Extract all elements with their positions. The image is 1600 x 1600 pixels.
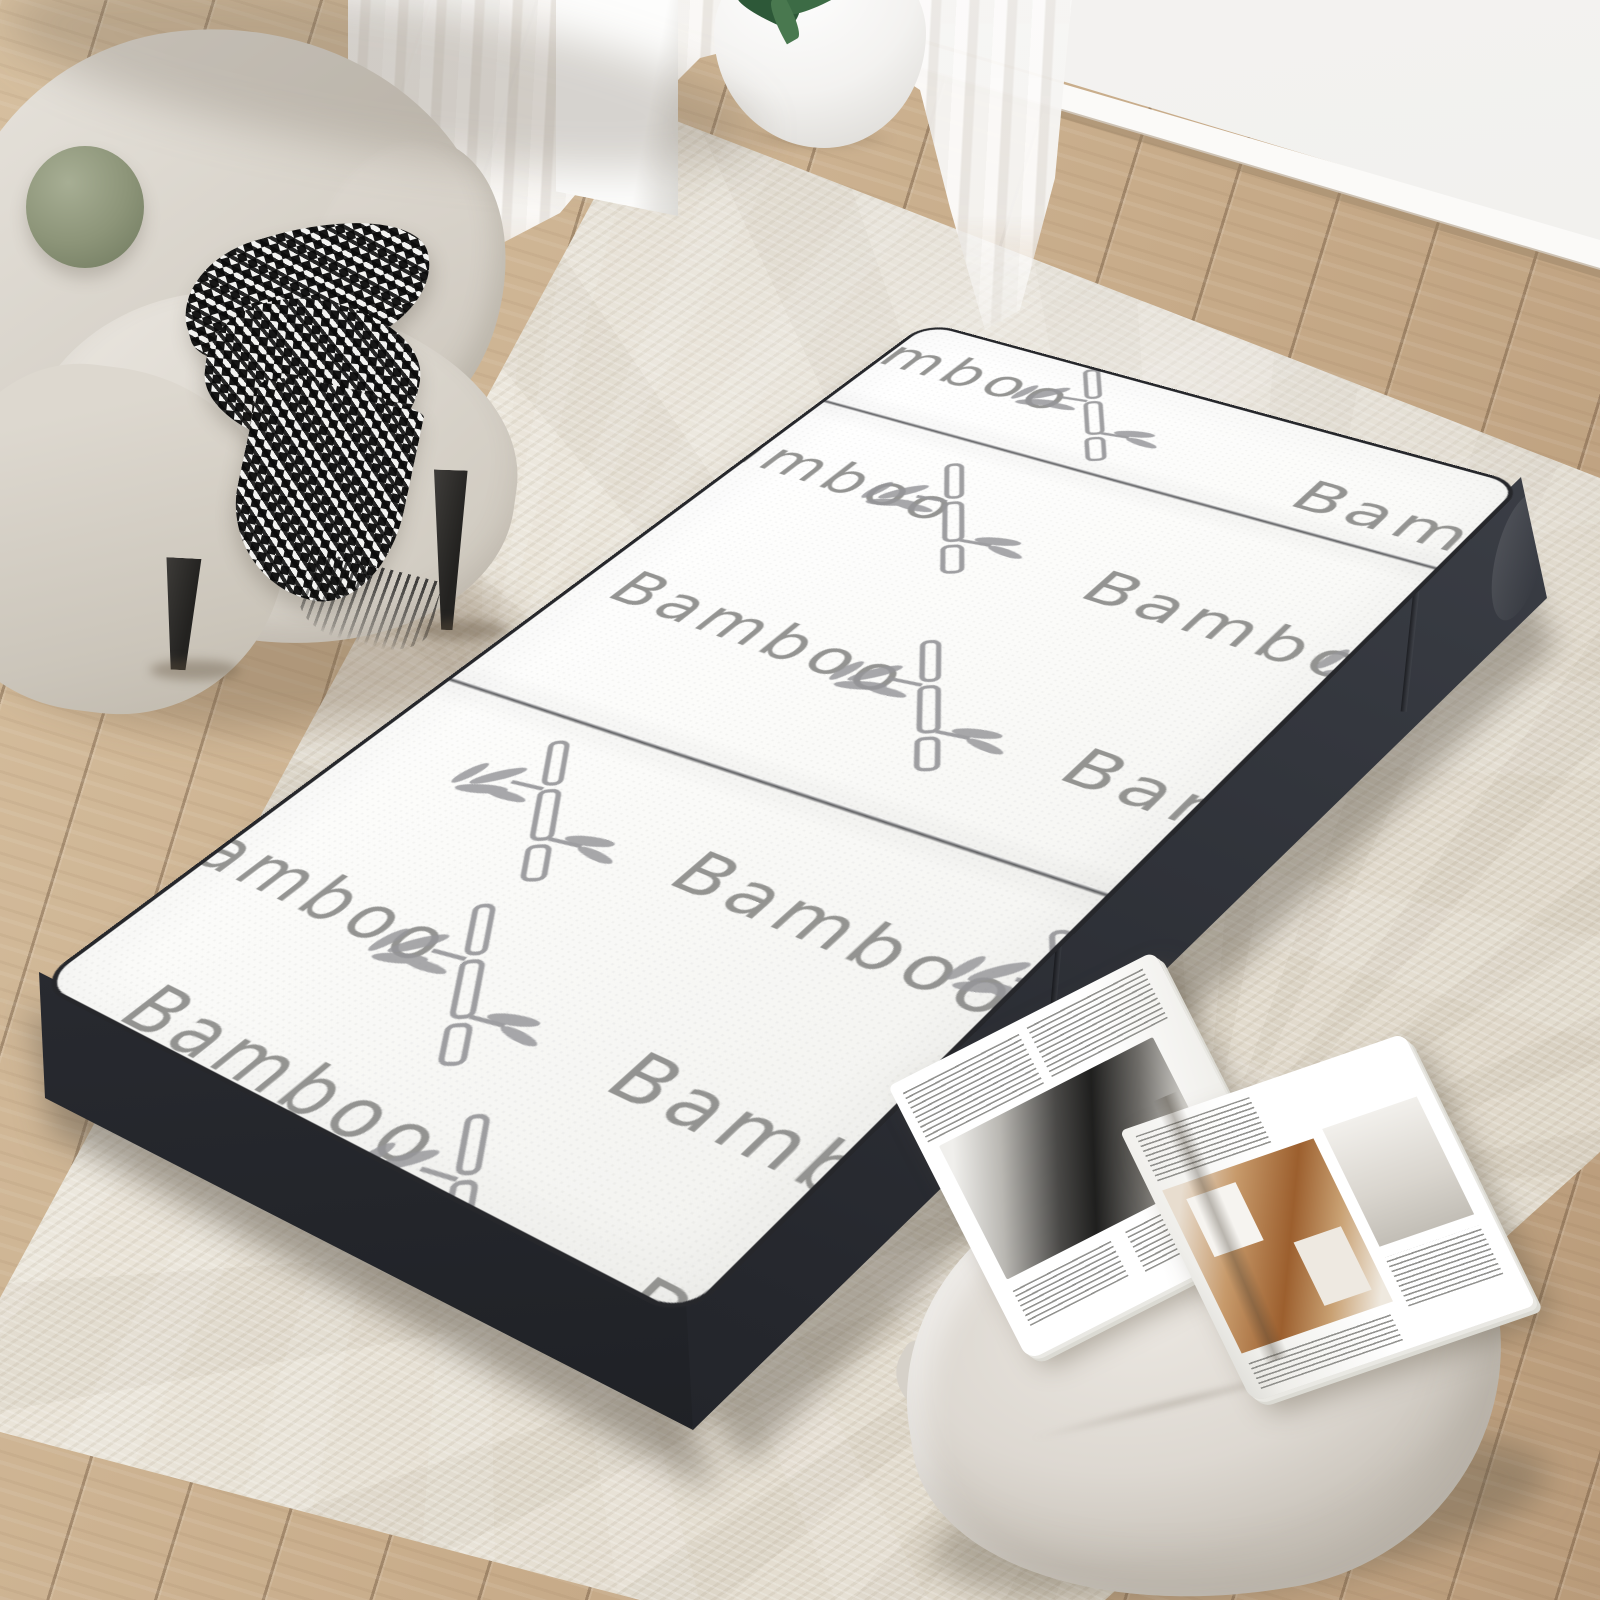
ball-pillow: [26, 146, 144, 268]
white-cabinet: [556, 0, 678, 216]
magazine-photo-detail: [1294, 1226, 1372, 1306]
chair-leg-shadow: [150, 660, 240, 680]
bamboo-plant-icon: [414, 732, 637, 890]
bamboo-plant-icon: [810, 631, 1010, 780]
scene: Bamboo Bamboo Bamboo Bamboo Bamboo Bambo…: [0, 0, 1600, 1600]
bamboo-plant-icon: [845, 455, 1028, 582]
bamboo-plant-icon: [323, 894, 567, 1074]
chair-leg-shadow: [418, 620, 508, 640]
